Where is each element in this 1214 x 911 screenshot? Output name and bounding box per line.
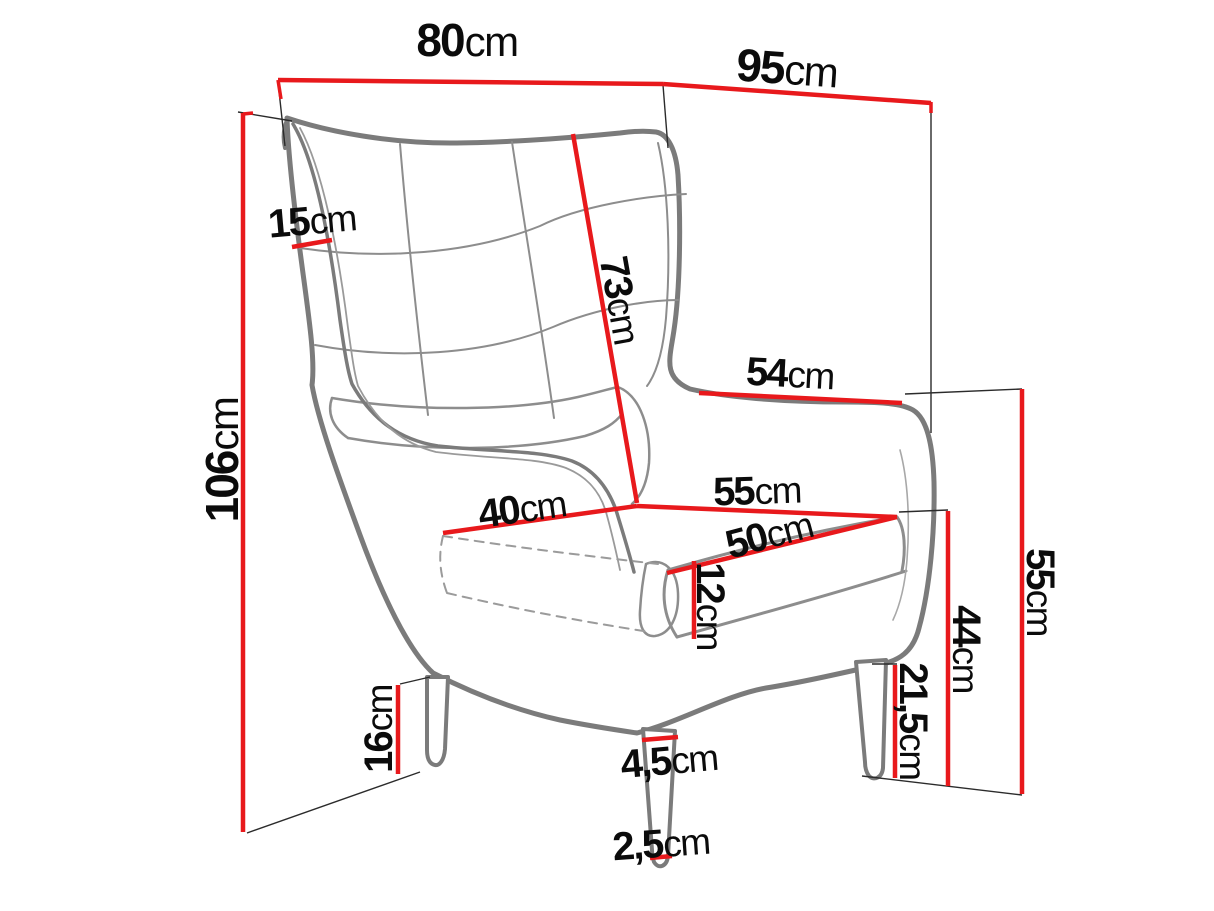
dim-unit: cm <box>786 354 834 397</box>
dim-unit: cm <box>517 483 569 530</box>
dim-unit: cm <box>945 647 986 693</box>
diagram-canvas <box>0 0 1214 911</box>
dim-value: 21,5 <box>891 662 935 732</box>
dim-unit: cm <box>689 604 730 650</box>
dim-label-overall-width: 80cm <box>416 17 517 63</box>
dim-label-rear-leg-height: 16cm <box>359 685 399 773</box>
dim-value: 40 <box>475 488 521 537</box>
dim-label-cushion-height: 12cm <box>690 562 730 650</box>
dim-value: 44 <box>944 605 988 646</box>
dim-value: 15 <box>266 199 310 246</box>
dim-value: 73 <box>591 253 641 301</box>
rear-right-leg <box>856 660 886 778</box>
dim-tick-overall-width <box>278 80 281 99</box>
dim-unit: cm <box>669 737 719 782</box>
dim-unit: cm <box>599 294 647 347</box>
dim-label-overall-depth: 95cm <box>735 42 839 95</box>
dim-value: 12 <box>688 562 732 603</box>
dim-label-overall-height: 106cm <box>199 398 245 523</box>
dim-unit: cm <box>892 733 933 779</box>
dim-value: 16 <box>357 732 401 773</box>
dim-value: 4,5 <box>619 739 672 787</box>
armchair-dimension-diagram: 80cm 95cm 15cm 106cm 73cm 54cm 40cm 55cm… <box>0 0 1214 911</box>
dim-value: 54 <box>745 350 788 396</box>
dim-value: 106 <box>196 452 248 523</box>
dim-unit: cm <box>465 18 518 65</box>
dim-value: 55 <box>1018 548 1062 589</box>
dim-unit: cm <box>1019 590 1060 636</box>
dim-label-wing-side: 15cm <box>267 197 358 245</box>
ext-floor-right-diagonal <box>862 776 1022 795</box>
dim-unit: cm <box>200 398 247 451</box>
dim-unit: cm <box>783 46 839 97</box>
dim-label-front-leg-bottom-width: 2,5cm <box>611 821 710 868</box>
dim-line-overall-width <box>278 80 663 84</box>
dim-value: 55 <box>712 469 754 514</box>
dim-label-side-base-height: 21,5cm <box>893 662 933 779</box>
dim-unit: cm <box>359 685 400 731</box>
ext-floor-left-diagonal <box>247 772 420 833</box>
dim-label-armrest-top-depth: 54cm <box>745 352 835 397</box>
rear-left-leg <box>427 677 448 765</box>
dim-label-seat-back-height: 55cm <box>1020 548 1060 636</box>
dim-label-seat-depth: 55cm <box>712 469 801 512</box>
dim-tick-overall-height <box>243 113 253 114</box>
dim-label-front-leg-top-width: 4,5cm <box>619 737 719 785</box>
dim-unit: cm <box>662 821 711 865</box>
dim-value: 2,5 <box>611 822 664 869</box>
dim-value: 95 <box>735 39 786 94</box>
dim-label-armrest-height: 44cm <box>946 605 986 693</box>
dim-unit: cm <box>308 197 358 242</box>
ext-seatback-top-horizontal <box>905 389 1022 394</box>
dim-value: 80 <box>416 14 463 66</box>
dim-unit: cm <box>754 469 802 512</box>
